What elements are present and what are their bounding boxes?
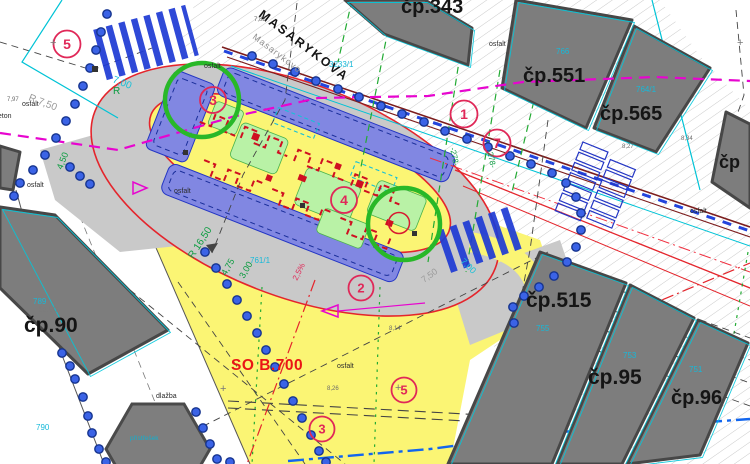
surface-concrete: beton <box>0 113 12 120</box>
parcel-789: 789 <box>33 297 47 306</box>
marker-label: 3 <box>318 422 325 437</box>
cross-mark: + <box>737 37 743 49</box>
parcel-766: 766 <box>556 47 570 56</box>
marker-label: 4 <box>340 192 348 208</box>
label-cp96: čp.96 <box>671 387 722 409</box>
surface-asphalt: osfalt <box>337 363 354 370</box>
site-plan-map: 5 3 1 7 4 2 5 3 MASARYKOVA Masarykovo čp… <box>0 0 750 464</box>
dim-radius: R <box>113 86 120 97</box>
elevation: 8,14 <box>389 326 401 332</box>
label-cp95: čp.95 <box>588 366 642 389</box>
label-cp-edge: čp <box>719 152 740 172</box>
elevation: 7,97 <box>7 97 19 103</box>
elevation: 7,82 <box>254 17 266 23</box>
parcel-3233-1: 3233/1 <box>329 60 354 69</box>
cross-mark: + <box>50 37 56 49</box>
cross-mark: + <box>220 383 226 395</box>
object-label-so-b700: SO B.700 <box>231 357 303 374</box>
surface-shelter: přístřešek <box>130 435 159 442</box>
surface-paving: dlažba <box>156 393 177 400</box>
parcel-753: 753 <box>623 351 637 360</box>
parcel-755: 755 <box>536 324 550 333</box>
label-cp565: čp.565 <box>600 103 662 125</box>
marker-label: 5 <box>400 383 407 398</box>
marker-label: 2 <box>357 281 364 296</box>
surface-asphalt: osfalt <box>204 63 221 70</box>
elevation: 8,34 <box>681 136 693 142</box>
cross-mark: + <box>395 382 401 394</box>
surface-asphalt: osfalt <box>27 182 44 189</box>
parcel-790: 790 <box>36 423 50 432</box>
label-cp551: čp.551 <box>523 65 585 87</box>
surface-asphalt: osfalt <box>690 208 707 215</box>
label-cp90: čp.90 <box>24 314 78 337</box>
marker-label: 5 <box>63 36 71 52</box>
site-plan-screenshot: 5 3 1 7 4 2 5 3 MASARYKOVA Masarykovo čp… <box>0 0 750 464</box>
surface-asphalt: osfalt <box>174 188 191 195</box>
label-cp90-small: čp.90 <box>38 305 58 314</box>
parcel-751: 751 <box>689 365 703 374</box>
parcel-764-1: 764/1 <box>636 85 657 94</box>
marker-label: 1 <box>460 106 468 122</box>
elevation: 8,26 <box>327 386 339 392</box>
elevation: 8,27 <box>622 144 634 150</box>
surface-asphalt: osfalt <box>489 41 506 48</box>
marker-label: 3 <box>209 92 217 108</box>
label-cp515: čp.515 <box>526 289 592 312</box>
parcel-761-1: 761/1 <box>250 256 271 265</box>
label-cp343: čp.343 <box>401 0 463 18</box>
